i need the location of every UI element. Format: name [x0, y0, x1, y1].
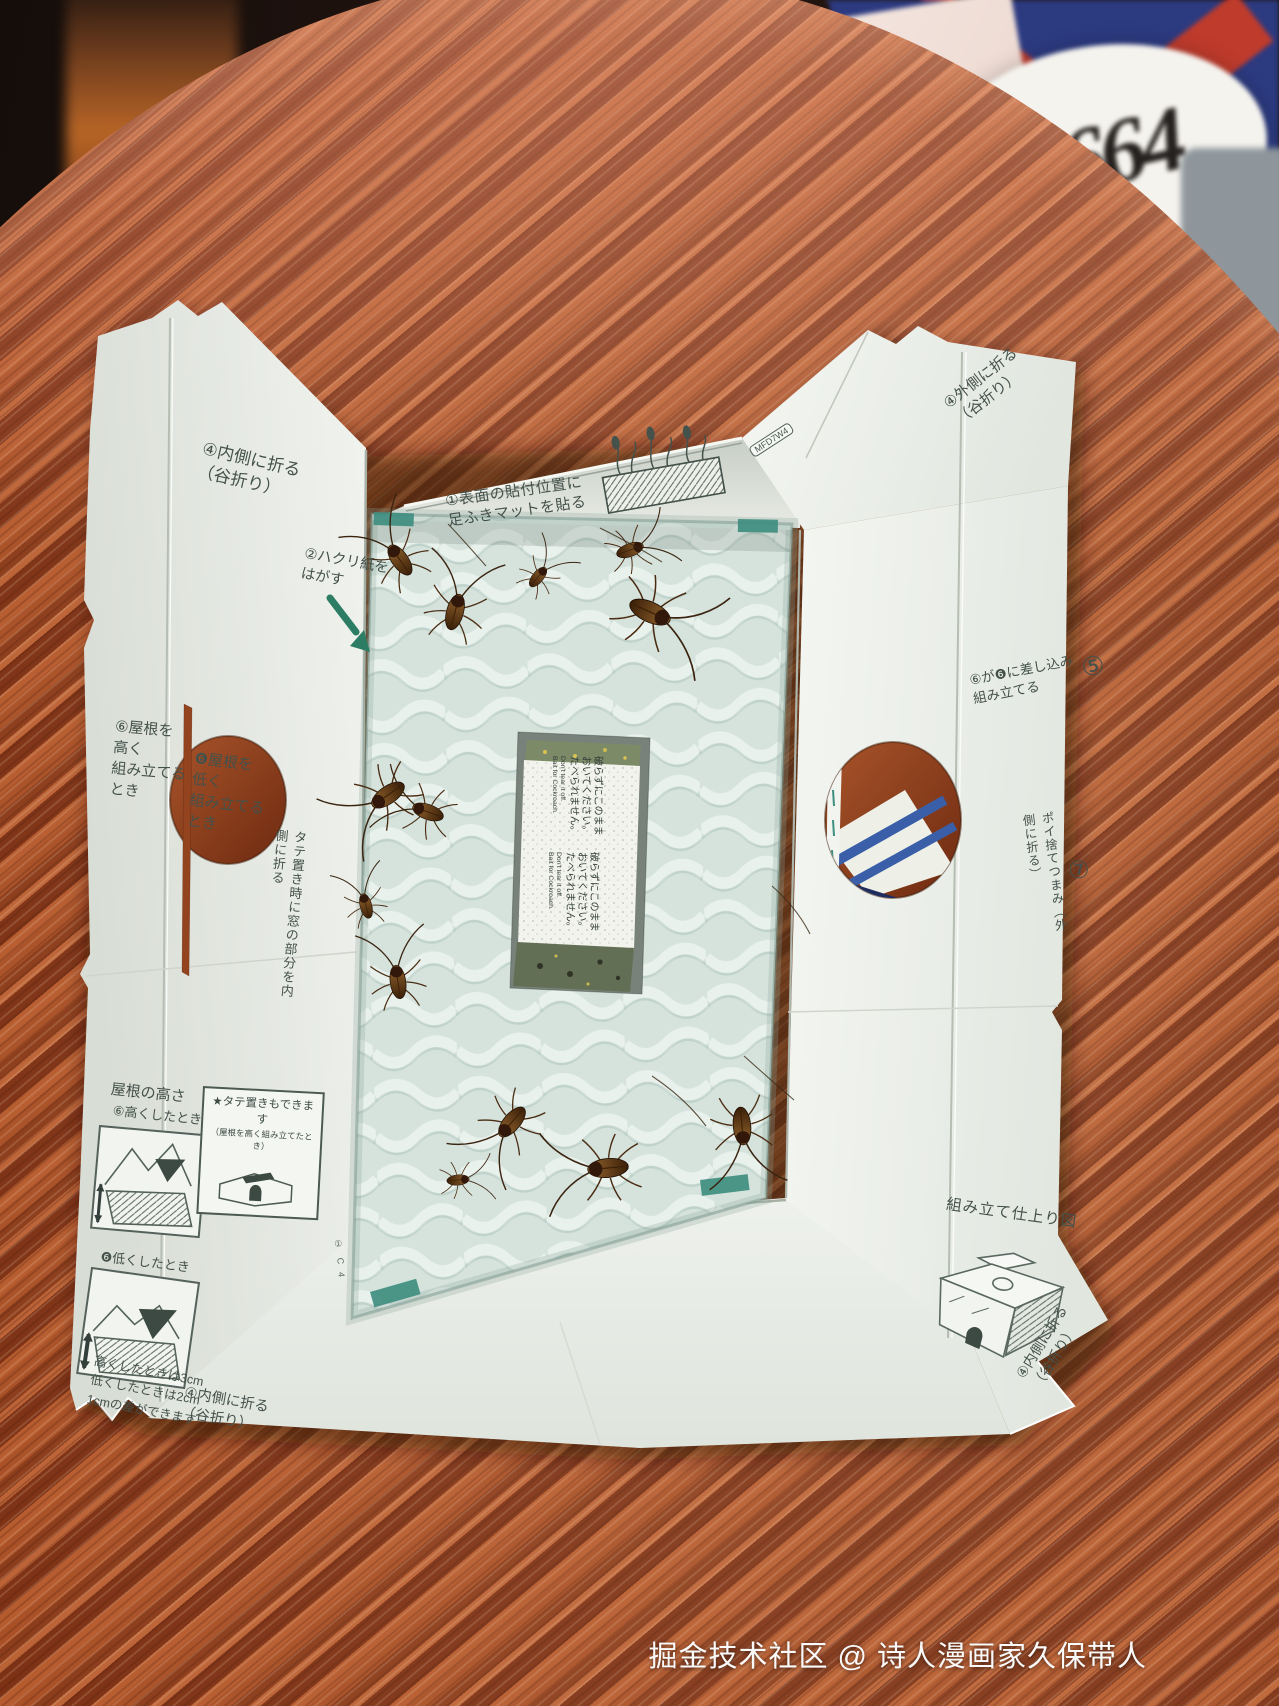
bait-label-top-text: 破らずにこのまま おいてください。 たべられません。 Don't tear it…	[549, 756, 603, 852]
bait-label-bottom: 破らずにこのまま おいてください。 たべられません。 Don't tear it…	[510, 852, 634, 948]
roof-low-note: ❻屋根を 低く 組み立てる とき	[186, 748, 271, 841]
bait-en-line2: Bait for Cockroach.	[545, 852, 553, 948]
step7-number: ⑦	[1067, 855, 1092, 886]
vertical-box-illustration	[203, 1149, 316, 1213]
bait-jp-line2: おいてください。	[578, 756, 590, 852]
bait-jp-line1: 破らずにこのまま	[591, 756, 603, 852]
right-hand-hole	[825, 742, 961, 898]
vertical-placement-box-line1: ★タテ置きもできます	[206, 1092, 320, 1130]
bait-en-line1: Don't tear it off.	[554, 852, 562, 948]
bait-en-line1: Don't tear it off.	[558, 756, 566, 852]
bait-label-top: 破らずにこのまま おいてください。 たべられません。 Don't tear it…	[514, 756, 638, 852]
bait-jp-line3: たべられません。	[566, 756, 578, 852]
bait-jp-line2: おいてください。	[574, 852, 586, 948]
roof-high-note: ⑥屋根を 高く 組み立てる とき	[109, 716, 191, 806]
bait-jp-line3: たべられません。	[562, 852, 574, 948]
watermark: 掘金技术社区 @ 诗人漫画家久保带人	[648, 1633, 1147, 1675]
bait-label-bottom-text: 破らずにこのまま おいてください。 たべられません。 Don't tear it…	[545, 852, 599, 948]
roof-high-illustration	[91, 1126, 207, 1237]
bait-jp-line1: 破らずにこのまま	[587, 852, 599, 948]
vertical-placement-box: ★タテ置きもできます （屋根を高く組み立てたとき）	[196, 1086, 325, 1220]
photo-scene: ROSÉ 1664	[0, 0, 1279, 1706]
bait-en-line2: Bait for Cockroach.	[549, 756, 557, 852]
